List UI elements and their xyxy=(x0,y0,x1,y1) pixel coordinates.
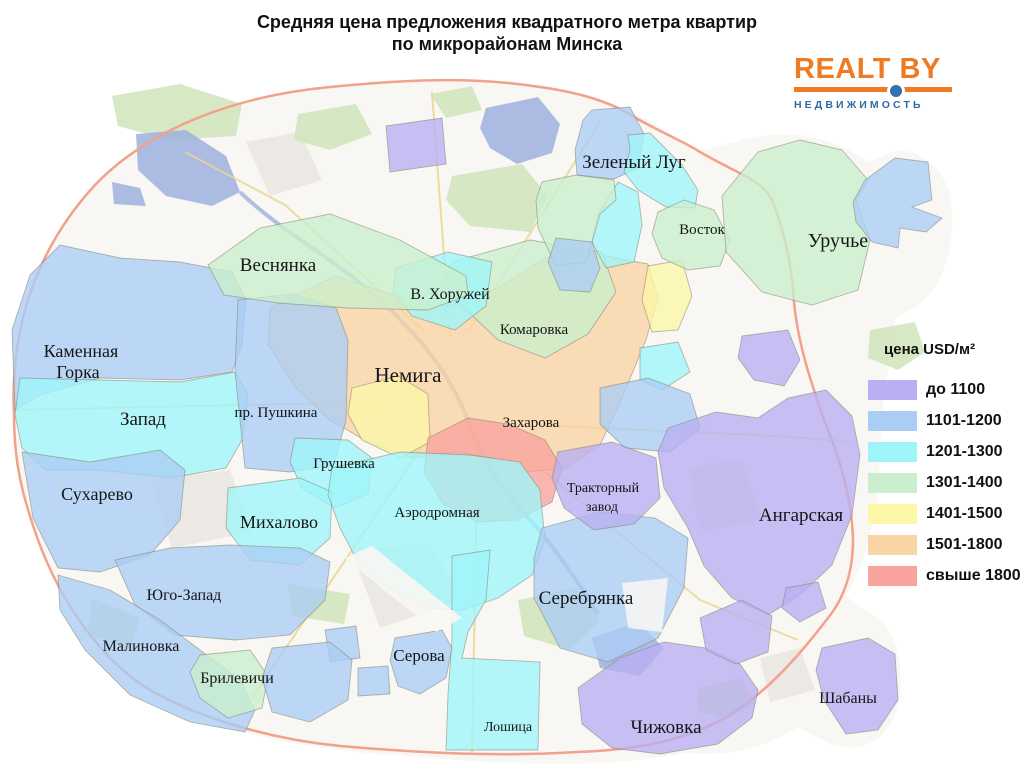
legend-label: 1401-1500 xyxy=(926,505,1003,523)
district-label-yugo-zapad: Юго-Запад xyxy=(147,587,222,604)
district-label-kamennaya-gorka-line2: Горка xyxy=(56,362,99,382)
district-label-vostok: Восток xyxy=(679,222,725,238)
district-label-kamennaya-gorka-line1: Каменная xyxy=(44,341,119,361)
legend-label: 1301-1400 xyxy=(926,474,1003,492)
legend-row: 1301-1400 xyxy=(868,473,1024,493)
legend-title: цена USD/м² xyxy=(884,341,1024,358)
district-label-grushevka: Грушевка xyxy=(313,456,375,472)
district-label-shabany: Шабаны xyxy=(819,690,877,707)
district-label-komarovka: Комаровка xyxy=(500,322,569,338)
realt-by-logo: REALT BY НЕДВИЖИМОСТЬ xyxy=(794,53,954,111)
district-label-serova: Серова xyxy=(393,646,445,665)
district-label-aerodromnaya: Аэродромная xyxy=(394,505,479,521)
district-label-zapad: Запад xyxy=(120,409,166,430)
district-label-brilevichi: Брилевичи xyxy=(200,670,274,687)
district-label-zakharova: Захарова xyxy=(503,415,560,431)
legend-label: 1201-1300 xyxy=(926,443,1003,461)
legend-swatch-yellow xyxy=(868,504,917,524)
district-label-pr-pushkina: пр. Пушкина xyxy=(235,405,318,421)
legend-row: 1201-1300 xyxy=(868,442,1024,462)
district-label-mikhalovo: Михалово xyxy=(240,512,318,532)
legend-swatch-purple xyxy=(868,380,917,400)
district-north-purple xyxy=(386,118,446,172)
legend-label: 1101-1200 xyxy=(926,412,1002,430)
district-label-loshitsa: Лошица xyxy=(484,720,533,735)
district-label-uruchye: Уручье xyxy=(808,230,868,252)
legend-label: 1501-1800 xyxy=(926,536,1003,554)
price-legend: цена USD/м² до 1100 1101-1200 1201-1300 … xyxy=(868,341,1024,597)
district-label-vesnyanka: Веснянка xyxy=(240,255,317,276)
logo-underline xyxy=(794,87,952,92)
district-label-angarskaya: Ангарская xyxy=(759,505,843,526)
page-title-line2: по микрорайонам Минска xyxy=(0,33,1014,55)
district-label-serebryanka: Серебрянка xyxy=(539,588,634,609)
logo-subtext: НЕДВИЖИМОСТЬ xyxy=(794,99,954,111)
district-label-chizhovka: Чижовка xyxy=(630,717,702,738)
logo-wordmark: REALT BY xyxy=(794,53,954,86)
legend-row: до 1100 xyxy=(868,380,1024,400)
district-label-v-khoruzhey: В. Хоружей xyxy=(410,286,490,303)
legend-row: 1401-1500 xyxy=(868,504,1024,524)
district-label-nemiga: Немига xyxy=(375,363,443,387)
district-label-zeleny-lug: Зеленый Луг xyxy=(582,152,686,173)
legend-swatch-green xyxy=(868,473,917,493)
district-label-traktorny-line1: Тракторный xyxy=(567,481,640,496)
legend-row: 1501-1800 xyxy=(868,535,1024,555)
district-label-sukharevo: Сухарево xyxy=(61,484,133,504)
legend-swatch-orange xyxy=(868,535,917,555)
legend-swatch-red xyxy=(868,566,917,586)
page-title-line1: Средняя цена предложения квадратного мет… xyxy=(0,11,1014,33)
legend-label: до 1100 xyxy=(926,381,985,399)
district-label-traktorny-line2: завод xyxy=(586,500,618,515)
legend-label: свыше 1800 xyxy=(926,567,1021,585)
legend-row: свыше 1800 xyxy=(868,566,1024,586)
district-serova-west xyxy=(358,666,390,696)
logo-dot-icon xyxy=(887,82,905,100)
legend-row: 1101-1200 xyxy=(868,411,1024,431)
district-label-malinovka: Малиновка xyxy=(103,638,180,655)
legend-swatch-cyan xyxy=(868,442,917,462)
page-title: Средняя цена предложения квадратного мет… xyxy=(0,11,1014,55)
infographic-canvas: Зеленый Луг Восток Уручье Веснянка В. Хо… xyxy=(0,0,1024,768)
legend-swatch-blue xyxy=(868,411,917,431)
